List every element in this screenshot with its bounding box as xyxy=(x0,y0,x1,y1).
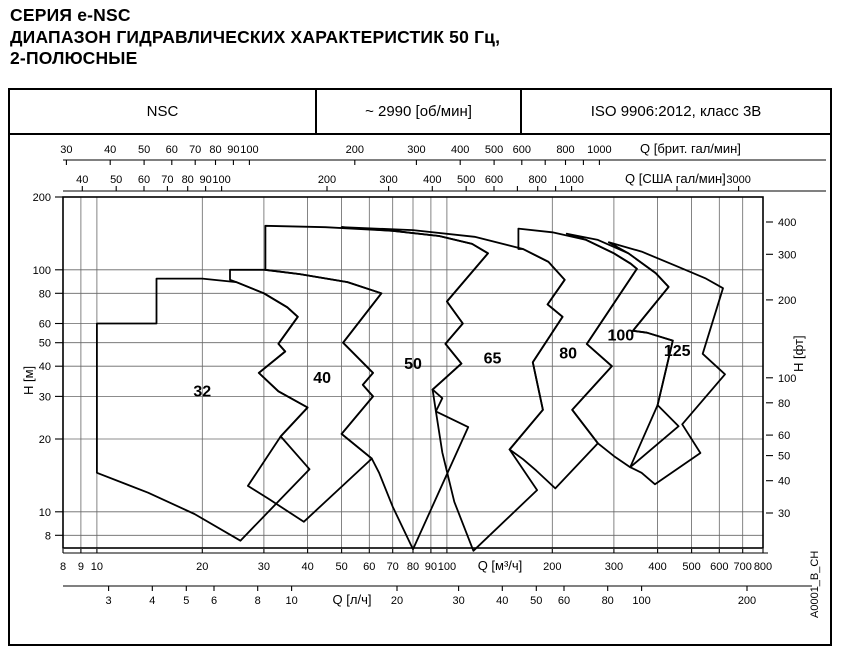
svg-text:40: 40 xyxy=(778,476,790,488)
svg-text:700: 700 xyxy=(734,561,752,573)
region-40 xyxy=(230,270,381,522)
svg-text:100: 100 xyxy=(632,595,650,607)
svg-text:10: 10 xyxy=(91,561,103,573)
svg-text:800: 800 xyxy=(556,144,574,156)
svg-text:4: 4 xyxy=(149,595,155,607)
svg-text:400: 400 xyxy=(778,217,796,229)
svg-text:600: 600 xyxy=(710,561,728,573)
region-100 xyxy=(567,234,679,468)
svg-text:30: 30 xyxy=(60,144,72,156)
svg-text:200: 200 xyxy=(543,561,561,573)
region-label-32: 32 xyxy=(193,383,211,400)
svg-text:60: 60 xyxy=(39,319,51,331)
svg-text:20: 20 xyxy=(39,434,51,446)
svg-text:400: 400 xyxy=(451,144,469,156)
svg-text:50: 50 xyxy=(778,451,790,463)
svg-text:100: 100 xyxy=(438,561,456,573)
svg-text:1000: 1000 xyxy=(587,144,611,156)
svg-text:600: 600 xyxy=(485,174,503,186)
svg-text:80: 80 xyxy=(182,174,194,186)
hydraulic-range-chart: 3240506580100125200100806050403020108H [… xyxy=(10,135,830,644)
y-axis-m: 200100806050403020108H [м] xyxy=(21,192,63,542)
svg-text:400: 400 xyxy=(423,174,441,186)
x-axis-ls-label: Q [л/ч] xyxy=(333,592,372,607)
header-speed: ~ 2990 [об/мин] xyxy=(317,90,522,133)
region-label-80: 80 xyxy=(559,346,577,363)
svg-text:8: 8 xyxy=(45,530,51,542)
svg-text:100: 100 xyxy=(778,373,796,385)
x-axis-imp-gpm: 304050607080901002003004005006008001000Q… xyxy=(60,141,826,165)
svg-text:60: 60 xyxy=(558,595,570,607)
svg-text:80: 80 xyxy=(39,288,51,300)
svg-text:80: 80 xyxy=(407,561,419,573)
svg-text:50: 50 xyxy=(530,595,542,607)
page: СЕРИЯ e-NSC ДИАПАЗОН ГИДРАВЛИЧЕСКИХ ХАРА… xyxy=(0,0,841,648)
svg-text:30: 30 xyxy=(452,595,464,607)
svg-text:8: 8 xyxy=(255,595,261,607)
svg-text:80: 80 xyxy=(209,144,221,156)
svg-text:300: 300 xyxy=(379,174,397,186)
svg-text:200: 200 xyxy=(318,174,336,186)
svg-text:60: 60 xyxy=(778,430,790,442)
region-65 xyxy=(342,227,565,551)
svg-text:8: 8 xyxy=(60,561,66,573)
svg-text:90: 90 xyxy=(425,561,437,573)
x-axis-m3h-label: Q [м³/ч] xyxy=(478,558,523,573)
x-axis-us-label: Q [США гал/мин] xyxy=(625,171,726,186)
y-axis-ft-label: H [фт] xyxy=(791,335,806,372)
pump-regions: 3240506580100125 xyxy=(97,226,725,551)
svg-text:20: 20 xyxy=(196,561,208,573)
svg-text:50: 50 xyxy=(110,174,122,186)
svg-text:80: 80 xyxy=(602,595,614,607)
svg-text:90: 90 xyxy=(199,174,211,186)
svg-text:500: 500 xyxy=(485,144,503,156)
svg-text:1000: 1000 xyxy=(559,174,583,186)
svg-text:40: 40 xyxy=(301,561,313,573)
svg-text:800: 800 xyxy=(529,174,547,186)
y-axis-m-label: H [м] xyxy=(21,366,36,395)
chart-outer-box: NSC ~ 2990 [об/мин] ISO 9906:2012, класс… xyxy=(8,88,832,646)
svg-text:200: 200 xyxy=(738,595,756,607)
x-axis-us-gpm: 4050607080901002003004005006008001000300… xyxy=(63,171,826,191)
svg-text:30: 30 xyxy=(778,508,790,520)
svg-text:70: 70 xyxy=(189,144,201,156)
svg-text:50: 50 xyxy=(39,338,51,350)
svg-text:300: 300 xyxy=(778,249,796,261)
svg-text:50: 50 xyxy=(335,561,347,573)
svg-text:40: 40 xyxy=(104,144,116,156)
y-axis-ft: 4003002001008060504030H [фт] xyxy=(766,217,806,520)
svg-text:80: 80 xyxy=(778,398,790,410)
region-label-100: 100 xyxy=(607,328,634,345)
header-series: NSC xyxy=(10,90,317,133)
svg-text:600: 600 xyxy=(513,144,531,156)
svg-text:3000: 3000 xyxy=(726,174,750,186)
svg-text:60: 60 xyxy=(166,144,178,156)
svg-text:500: 500 xyxy=(457,174,475,186)
svg-text:300: 300 xyxy=(407,144,425,156)
svg-text:200: 200 xyxy=(778,295,796,307)
svg-text:60: 60 xyxy=(363,561,375,573)
svg-text:200: 200 xyxy=(33,192,51,204)
svg-text:70: 70 xyxy=(387,561,399,573)
svg-text:300: 300 xyxy=(605,561,623,573)
x-axis-m3h: 8910203040506070809010020030040050060070… xyxy=(60,549,772,573)
x-axis-ls: 3456810203040506080100200Q [л/ч] xyxy=(63,586,812,607)
svg-text:200: 200 xyxy=(346,144,364,156)
title-line-1: СЕРИЯ e-NSC xyxy=(10,5,500,27)
region-label-50: 50 xyxy=(404,356,422,373)
page-title: СЕРИЯ e-NSC ДИАПАЗОН ГИДРАВЛИЧЕСКИХ ХАРА… xyxy=(10,5,500,70)
title-line-3: 2-ПОЛЮСНЫЕ xyxy=(10,48,500,70)
drawing-number: A0001_B_CH xyxy=(809,551,821,618)
svg-text:50: 50 xyxy=(138,144,150,156)
svg-text:40: 40 xyxy=(39,361,51,373)
svg-text:100: 100 xyxy=(240,144,258,156)
region-label-125: 125 xyxy=(664,343,691,360)
svg-text:800: 800 xyxy=(754,561,772,573)
svg-text:40: 40 xyxy=(76,174,88,186)
svg-text:70: 70 xyxy=(161,174,173,186)
header-standard: ISO 9906:2012, класс 3В xyxy=(522,90,830,133)
svg-text:500: 500 xyxy=(682,561,700,573)
x-axis-imp-label: Q [брит. гал/мин] xyxy=(640,141,741,156)
svg-text:10: 10 xyxy=(39,507,51,519)
svg-text:30: 30 xyxy=(39,391,51,403)
svg-text:3: 3 xyxy=(106,595,112,607)
svg-text:6: 6 xyxy=(211,595,217,607)
region-label-65: 65 xyxy=(484,351,502,368)
svg-text:400: 400 xyxy=(648,561,666,573)
region-label-40: 40 xyxy=(313,370,331,387)
title-line-2: ДИАПАЗОН ГИДРАВЛИЧЕСКИХ ХАРАКТЕРИСТИК 50… xyxy=(10,27,500,49)
svg-text:100: 100 xyxy=(212,174,230,186)
svg-text:100: 100 xyxy=(33,265,51,277)
region-125 xyxy=(609,242,725,484)
svg-text:40: 40 xyxy=(496,595,508,607)
region-32 xyxy=(97,279,310,541)
svg-text:30: 30 xyxy=(258,561,270,573)
svg-text:10: 10 xyxy=(285,595,297,607)
svg-text:90: 90 xyxy=(227,144,239,156)
svg-text:5: 5 xyxy=(183,595,189,607)
svg-text:20: 20 xyxy=(391,595,403,607)
svg-text:9: 9 xyxy=(78,561,84,573)
svg-text:60: 60 xyxy=(138,174,150,186)
chart-header: NSC ~ 2990 [об/мин] ISO 9906:2012, класс… xyxy=(10,90,830,135)
